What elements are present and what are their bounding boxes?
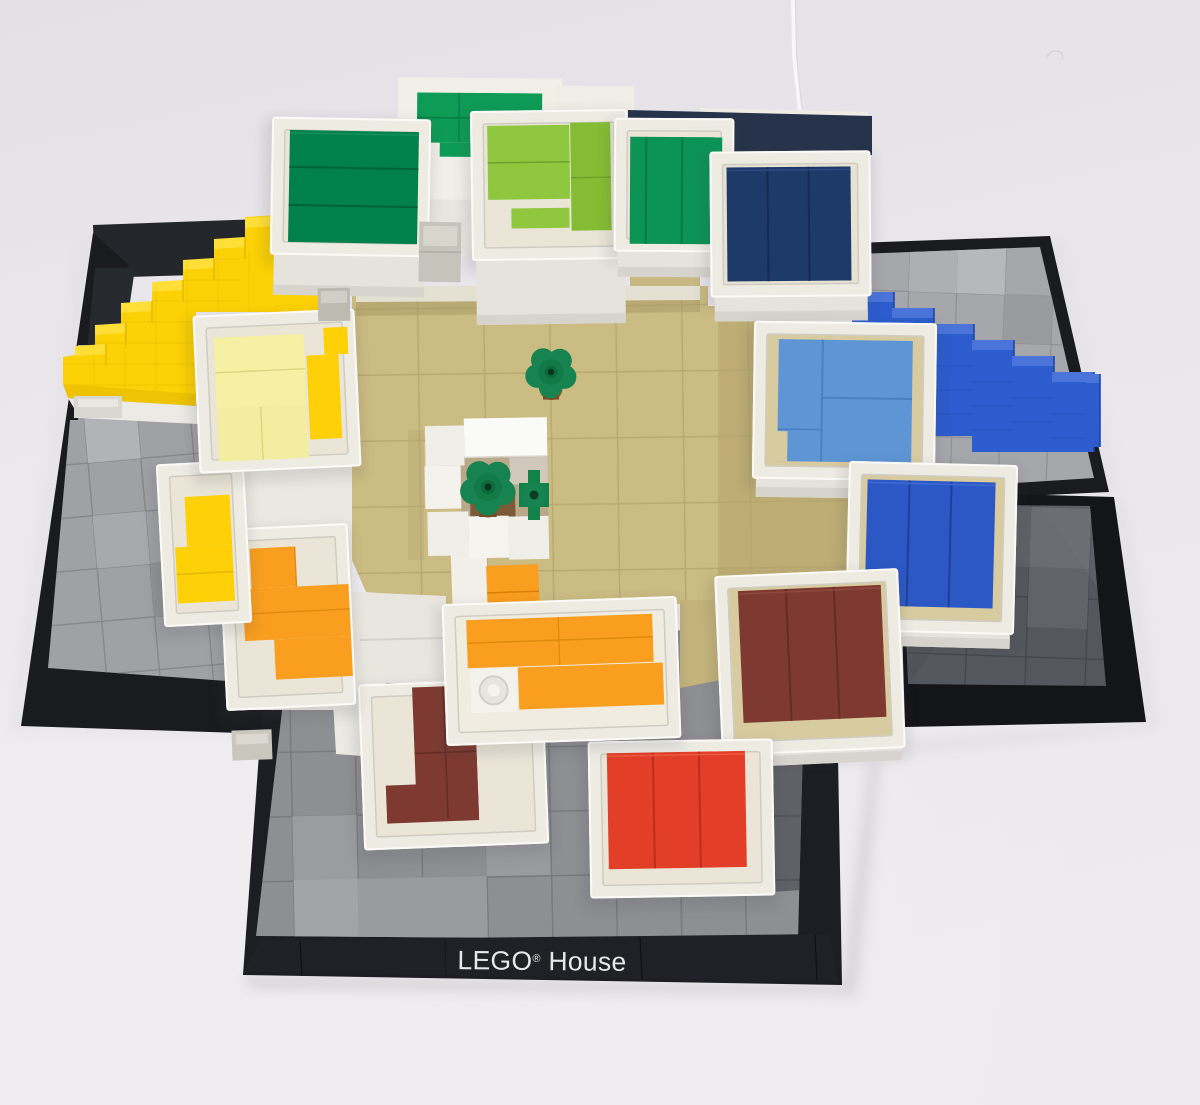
svg-text:LEGO® House: LEGO® House	[457, 945, 626, 977]
